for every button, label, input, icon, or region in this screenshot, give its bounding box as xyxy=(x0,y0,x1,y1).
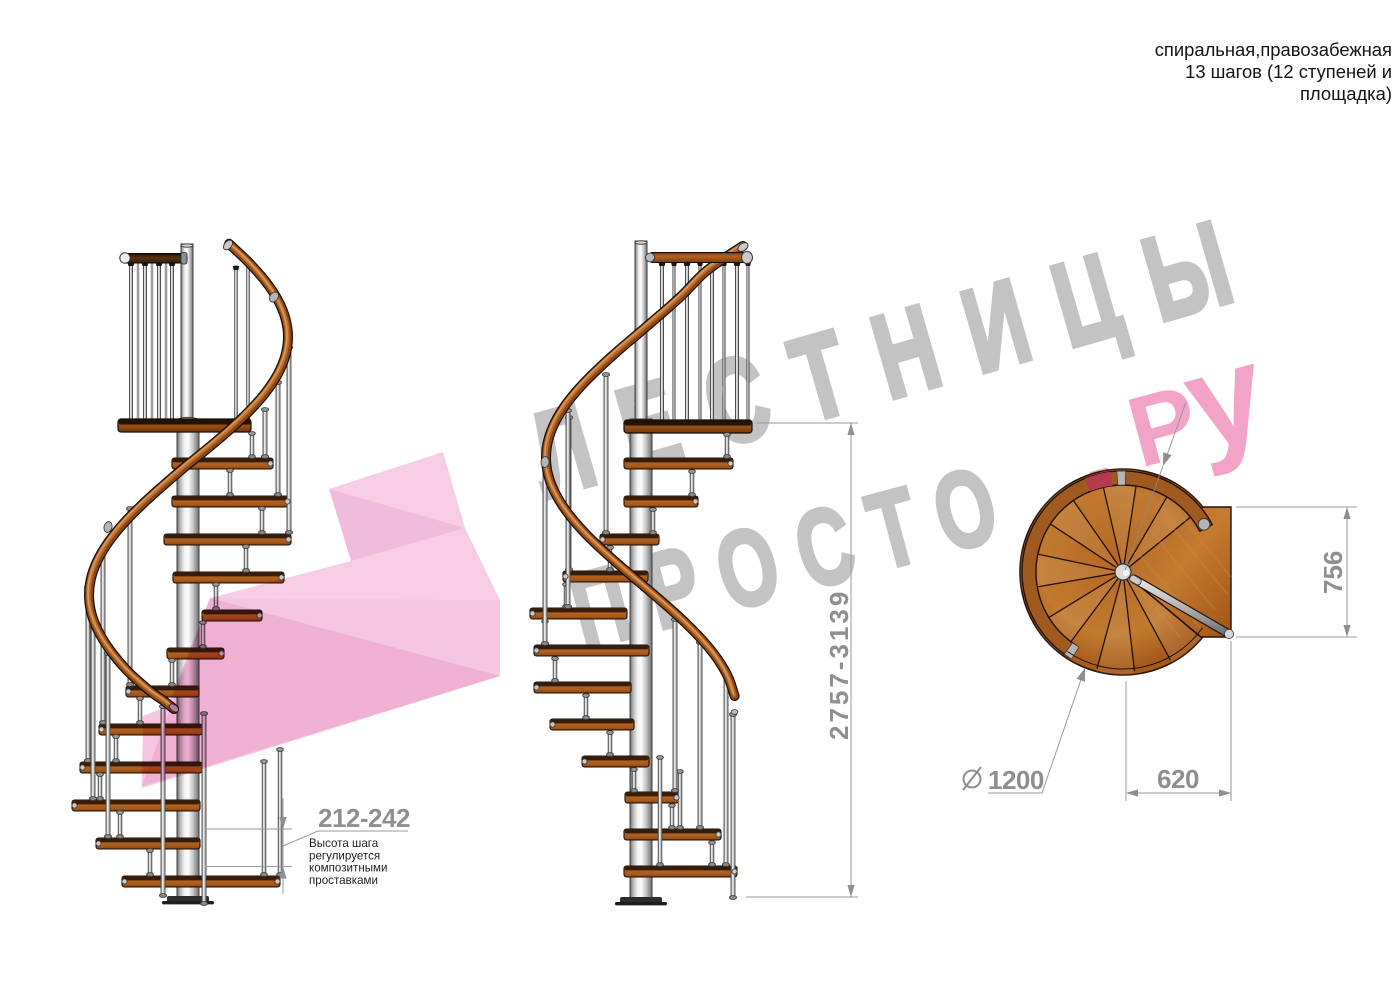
svg-text:композитными: композитными xyxy=(309,862,388,875)
svg-text:756: 756 xyxy=(1318,551,1348,594)
svg-text:2757-3139: 2757-3139 xyxy=(824,589,854,740)
svg-text:Высота шага: Высота шага xyxy=(309,837,379,850)
svg-text:1200: 1200 xyxy=(988,765,1044,795)
svg-text:спиральная,правозабежная: спиральная,правозабежная xyxy=(1155,39,1392,60)
svg-text:площадка): площадка) xyxy=(1300,83,1392,104)
svg-text:проставками: проставками xyxy=(309,874,378,887)
svg-text:620: 620 xyxy=(1157,764,1199,794)
svg-text:регулируется: регулируется xyxy=(309,849,380,862)
svg-text:212-242: 212-242 xyxy=(318,803,410,833)
svg-text:13 шагов (12 ступеней и: 13 шагов (12 ступеней и xyxy=(1185,61,1392,82)
